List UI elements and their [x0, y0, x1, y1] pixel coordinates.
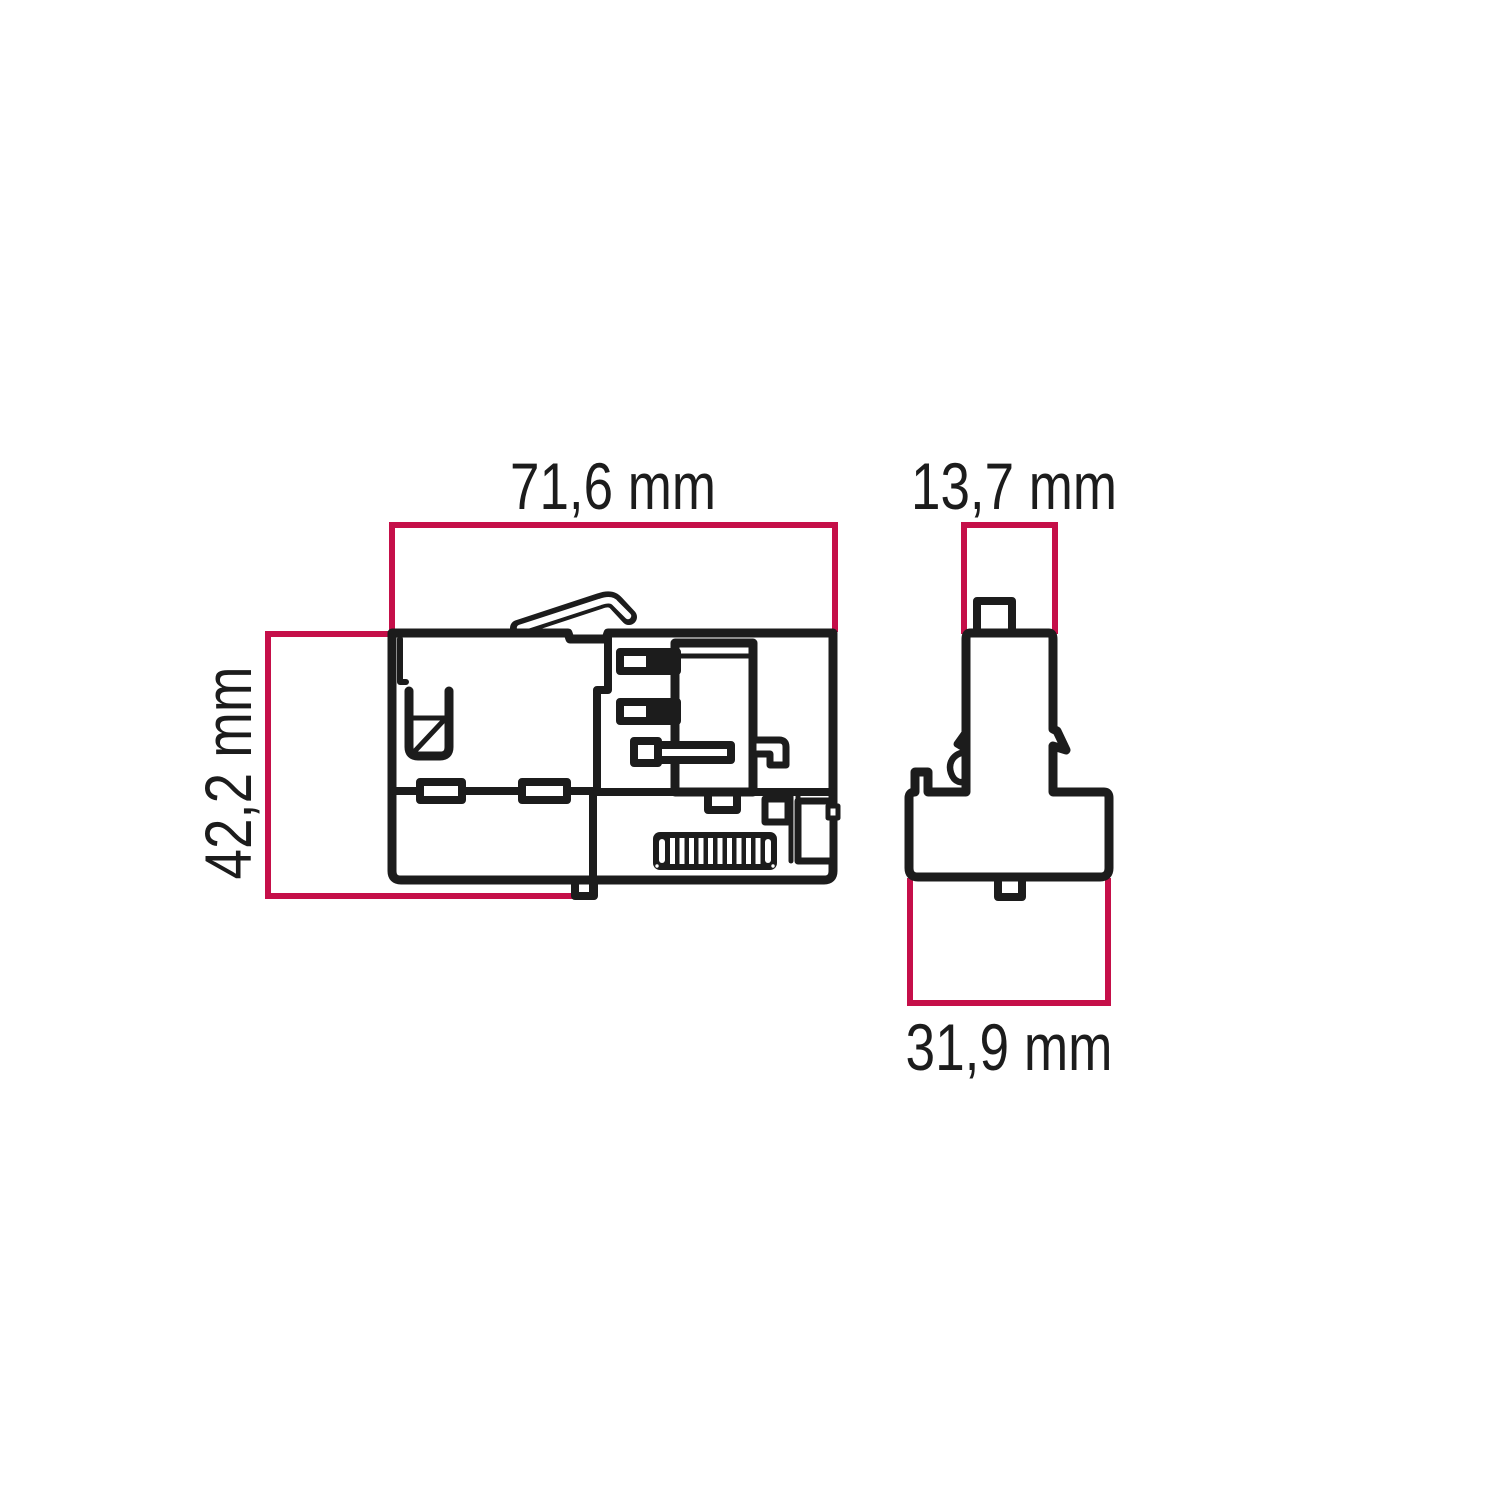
front-view-outline: [909, 633, 1109, 877]
width-dimension-line: [392, 525, 835, 632]
dimension-drawing: 71,6 mm 42,2 mm 13,7 mm 31,9 mm: [0, 0, 1500, 1500]
contact-t-bar: [634, 741, 731, 763]
front-view: [909, 601, 1109, 897]
side-view: [392, 599, 838, 896]
top-width-dimension-label: 13,7 mm: [911, 449, 1117, 523]
width-dimension-label: 71,6 mm: [510, 449, 716, 523]
base-width-dimension-label: 31,9 mm: [906, 1010, 1113, 1084]
height-dimension-label: 42,2 mm: [191, 667, 265, 880]
dimension-diagram: 71,6 mm 42,2 mm 13,7 mm 31,9 mm: [0, 0, 1500, 1500]
stem-top-tab: [977, 601, 1012, 633]
ribbed-grille: [653, 832, 777, 870]
divider-tab-2: [522, 782, 567, 800]
contact-block: [675, 643, 753, 792]
release-lever-icon: [518, 599, 629, 628]
divider-tab-1: [420, 782, 462, 800]
contact-prong-1: [620, 652, 677, 671]
contact-prong-2: [620, 702, 677, 721]
dimension-base-width: 31,9 mm: [906, 878, 1113, 1084]
